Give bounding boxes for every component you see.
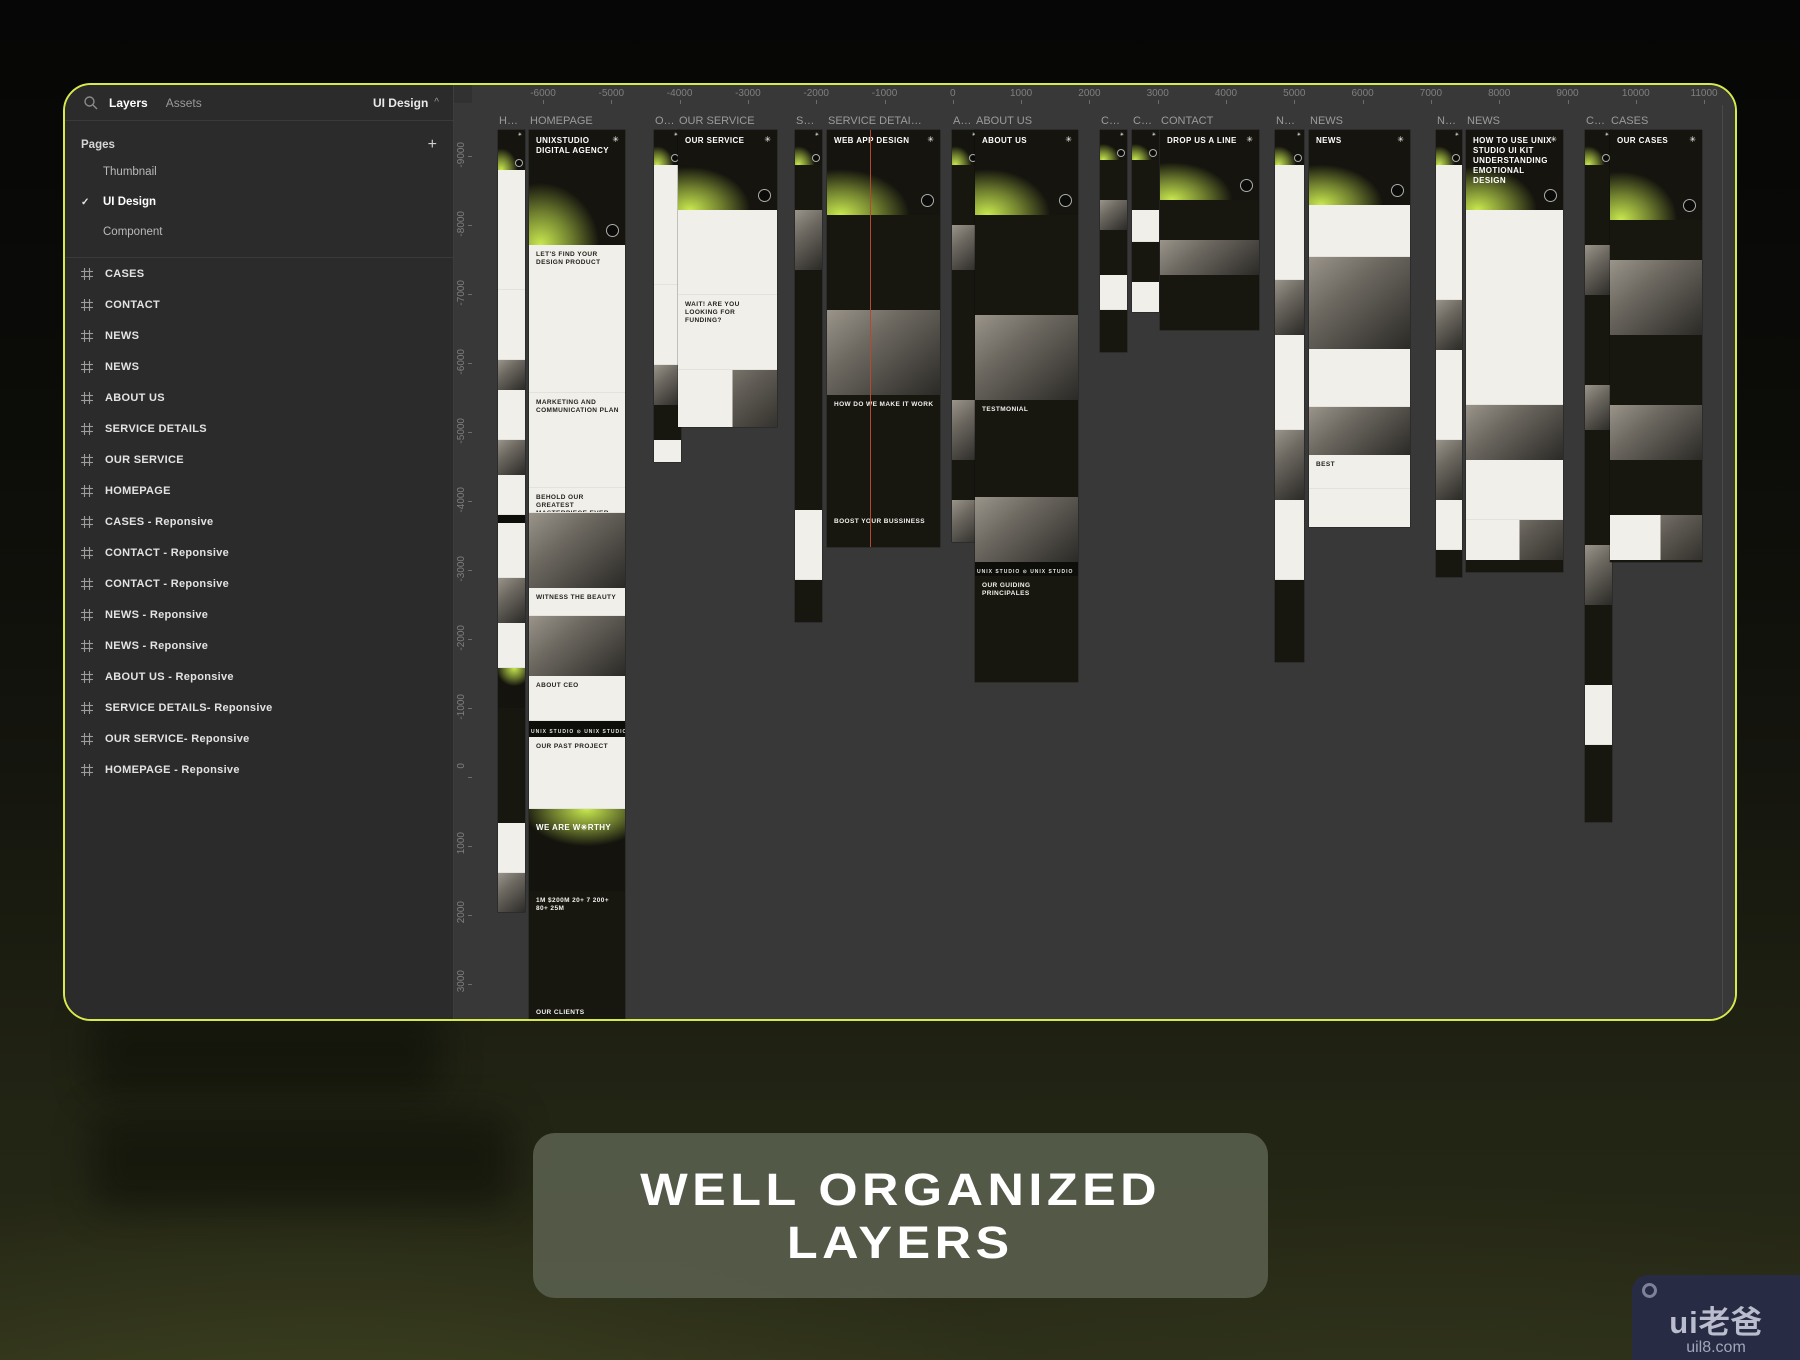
frame-section: 1M $200M 20+ 7 200+ 80+ 25M (529, 891, 625, 1003)
ruler-tick (1431, 100, 1432, 104)
canvas-frame-service-detai-: SERVICE DETAI…WEB APP DESIGN✳HOW DO WE M… (827, 130, 940, 547)
sidebar-page-thumbnail[interactable]: Thumbnail (65, 157, 453, 187)
section-text: HOW DO WE MAKE IT WORK (827, 395, 940, 409)
frame-section (1160, 240, 1259, 275)
page-label: Component (103, 226, 162, 238)
ruler-label: -3000 (456, 556, 467, 582)
ruler-label: -6000 (456, 349, 467, 375)
frame-section (498, 290, 525, 360)
artboard[interactable]: ✳ (654, 130, 681, 462)
artboard[interactable]: ✳ (1436, 130, 1462, 577)
frame-section (1585, 545, 1612, 605)
frame-section: BOOST YOUR BUSSINESS (827, 512, 940, 547)
ruler-tick (468, 225, 472, 226)
frame-section (1132, 210, 1159, 242)
star-icon: ✳ (1120, 133, 1124, 138)
ruler-tick (1158, 100, 1159, 104)
frame-section (498, 668, 525, 708)
canvas-frame-c-: C…✳ (1132, 130, 1159, 312)
frame-section (529, 513, 625, 588)
artboard[interactable]: ✳ (1275, 130, 1304, 662)
section-text: MARKETING AND COMMUNICATION PLAN (529, 393, 625, 415)
frame-section (1275, 430, 1304, 500)
frame-section (1436, 350, 1462, 440)
circle-button-icon (759, 190, 770, 201)
frame-section (795, 165, 822, 210)
frame-section (1466, 210, 1563, 405)
frame-name[interactable]: S… (796, 115, 814, 127)
frame-section: TESTMONIAL (975, 400, 1078, 442)
frame-section: ✳ (654, 130, 681, 165)
frame-section (498, 523, 525, 578)
ruler-tick (468, 501, 472, 502)
ruler-tick (468, 915, 472, 916)
frame-icon (81, 609, 93, 621)
frame-section: ✳ (795, 130, 822, 165)
ruler-tick (468, 639, 472, 640)
frame-icon (81, 578, 93, 590)
ruler-tick (468, 708, 472, 709)
frame-name[interactable]: N… (1437, 115, 1456, 127)
ruler-tick (1704, 100, 1705, 104)
ruler-label: 0 (950, 88, 956, 99)
frame-name[interactable]: CASES (1611, 115, 1648, 127)
frame-section: WE ARE W✳RTHY (529, 809, 625, 891)
frame-section (529, 616, 625, 676)
frame-section (654, 405, 681, 440)
artboard[interactable]: ABOUT US✳TESTMONIALUNIX STUDIO ⊙ UNIX ST… (975, 130, 1078, 682)
layer-label: CONTACT (105, 299, 160, 311)
frame-section: ✳ (1100, 130, 1127, 160)
frame-section: HOW TO USE UNIX STUDIO UI KIT UNDERSTAND… (1466, 130, 1563, 210)
frame-section (975, 626, 1078, 682)
frame-section (498, 170, 525, 290)
ruler-tick (468, 363, 472, 364)
canvas-frame-contact: CONTACTDROP US A LINE✳ (1160, 130, 1259, 330)
frame-section (1100, 200, 1127, 230)
frame-icon (81, 516, 93, 528)
section-text: LET'S FIND YOUR DESIGN PRODUCT (529, 245, 625, 267)
layer-label: ABOUT US - Reponsive (105, 671, 234, 683)
ruler-tick (680, 100, 681, 104)
frame-section (827, 310, 940, 395)
frame-section: ✳ (1585, 130, 1612, 165)
frame-section (1100, 310, 1127, 352)
frame-section (498, 623, 525, 668)
sidebar-item-homepage-reponsive[interactable]: HOMEPAGE - Reponsive (65, 754, 453, 785)
frame-section (1610, 460, 1702, 515)
section-text: OUR PAST PROJECT (529, 737, 625, 751)
frame-name[interactable]: C… (1133, 115, 1152, 127)
ruler-label: -2000 (803, 88, 829, 99)
canvas-frame-n-: N…✳ (1275, 130, 1304, 662)
frame-section: HOW DO WE MAKE IT WORK (827, 395, 940, 450)
frame-section (1309, 349, 1410, 407)
frame-section (654, 285, 681, 365)
ruler-tick (748, 100, 749, 104)
canvas-frame-news: NEWSNEWS✳BEST (1309, 130, 1410, 527)
canvas[interactable]: -6000-5000-4000-3000-2000-10000100020003… (454, 85, 1735, 1019)
pages-section-header: Pages + (65, 121, 453, 157)
frame-section (1585, 245, 1612, 295)
ruler-label: -4000 (667, 88, 693, 99)
ruler-tick (1021, 100, 1022, 104)
tab-layers[interactable]: Layers (109, 96, 148, 110)
artboard[interactable]: ✳ (498, 130, 525, 912)
sidebar-page-component[interactable]: Component (65, 217, 453, 247)
frame-icon (81, 764, 93, 776)
layer-label: ABOUT US (105, 392, 165, 404)
sidebar-item-cases[interactable]: CASES (65, 258, 453, 289)
section-text: WE ARE W✳RTHY (529, 809, 625, 833)
section-text: BEHOLD OUR GREATEST MASTERPIECE EVER (529, 488, 625, 513)
check-icon: ✓ (81, 197, 103, 208)
ruler-label: 2000 (456, 901, 467, 923)
canvas-frame-c-: C…✳ (1585, 130, 1612, 822)
circle-button-icon (1241, 180, 1252, 191)
canvas-frame-our-service: OUR SERVICEOUR SERVICE✳WAIT! ARE YOU LOO… (678, 130, 777, 427)
canvas-frame-h-: H…✳ (498, 130, 525, 912)
ruler-tick (468, 156, 472, 157)
frame-section (1275, 580, 1304, 625)
canvas-frame-o-: O…✳ (654, 130, 681, 462)
frame-section: WITNESS THE BEAUTY (529, 588, 625, 616)
layer-label: SERVICE DETAILS- Reponsive (105, 702, 273, 714)
ruler-label: 3000 (456, 970, 467, 992)
layer-label: NEWS (105, 330, 139, 342)
sidebar-item-our-service-reponsive[interactable]: OUR SERVICE- Reponsive (65, 723, 453, 754)
sidebar-item-about-us[interactable]: ABOUT US (65, 382, 453, 413)
sidebar-item-news-reponsive[interactable]: NEWS - Reponsive (65, 630, 453, 661)
frame-section (1585, 605, 1612, 685)
frame-name[interactable]: SERVICE DETAI… (828, 115, 922, 127)
frame-section (1275, 280, 1304, 335)
frame-section (1610, 220, 1702, 260)
artboard[interactable]: ✳ (1585, 130, 1612, 822)
ruler-tick (1226, 100, 1227, 104)
ui8-watermark-badge: ui老爸 uil8.com (1632, 1275, 1800, 1360)
tab-assets[interactable]: Assets (166, 96, 202, 110)
star-icon: ✳ (764, 136, 771, 144)
sidebar-item-news-reponsive[interactable]: NEWS - Reponsive (65, 599, 453, 630)
frame-section (678, 210, 777, 295)
sidebar-item-contact-reponsive[interactable]: CONTACT - Reponsive (65, 568, 453, 599)
frame-section (498, 823, 525, 873)
circle-button-icon (1295, 155, 1301, 161)
frame-section (975, 497, 1078, 562)
frame-section (678, 370, 777, 427)
section-text: BEST (1309, 455, 1410, 469)
page-label: Thumbnail (103, 166, 157, 178)
frame-section (795, 420, 822, 510)
frame-section: UNIX STUDIO ⊙ UNIX STUDIO (975, 562, 1078, 576)
frame-section (1466, 520, 1563, 560)
ruler-tick (1294, 100, 1295, 104)
ruler-tick (953, 100, 954, 104)
frame-section (498, 390, 525, 440)
circle-button-icon (516, 160, 522, 166)
star-icon: ✳ (1605, 133, 1609, 138)
frame-section: ✳ (498, 130, 525, 170)
frame-section (1610, 260, 1702, 335)
ruler-label: -7000 (456, 280, 467, 306)
frame-section: OUR CLIENTS (529, 1003, 625, 1019)
section-text: UNIXSTUDIO DIGITAL AGENCY (529, 130, 625, 156)
section-text: UNIX STUDIO ⊙ UNIX STUDIO (975, 563, 1078, 575)
layer-label: CONTACT - Reponsive (105, 547, 229, 559)
canvas-frame-cases: CASESOUR CASES✳ (1610, 130, 1702, 562)
sidebar-item-service-details-reponsive[interactable]: SERVICE DETAILS- Reponsive (65, 692, 453, 723)
artboard[interactable]: DROP US A LINE✳ (1160, 130, 1259, 330)
frame-section: OUR SERVICE✳ (678, 130, 777, 210)
sidebar-item-news[interactable]: NEWS (65, 320, 453, 351)
section-text: OUR CLIENTS (529, 1003, 625, 1017)
frame-section (1466, 460, 1563, 520)
canvas-frame-c-: C…✳ (1100, 130, 1127, 352)
ruler-label: -1000 (872, 88, 898, 99)
frame-name[interactable]: HOMEPAGE (530, 115, 593, 127)
frame-name[interactable]: N… (1276, 115, 1295, 127)
circle-button-icon (1545, 190, 1556, 201)
star-icon: ✳ (1550, 136, 1557, 144)
stage: Layers Assets UI Design ^ Pages + Thumbn… (0, 0, 1800, 1360)
frame-section (1436, 300, 1462, 350)
frame-section (1160, 275, 1259, 330)
frame-icon (81, 485, 93, 497)
frame-section (795, 270, 822, 420)
layer-label: CASES - Reponsive (105, 516, 213, 528)
frame-name[interactable]: NEWS (1467, 115, 1500, 127)
frame-section (498, 360, 525, 390)
canvas-frame-homepage: HOMEPAGEUNIXSTUDIO DIGITAL AGENCY✳LET'S … (529, 130, 625, 1019)
sidebar-page-ui-design[interactable]: ✓UI Design (65, 187, 453, 217)
frame-section (1585, 385, 1612, 430)
ruler-label: -2000 (456, 625, 467, 651)
frame-section (1585, 295, 1612, 385)
frame-section (498, 708, 525, 778)
frame-section (975, 442, 1078, 497)
ruler-tick (816, 100, 817, 104)
ruler-label: 2000 (1078, 88, 1100, 99)
layers-panel: Layers Assets UI Design ^ Pages + Thumbn… (65, 85, 454, 1019)
frame-section: OUR GUIDING PRINCIPALES (975, 576, 1078, 626)
artboard[interactable]: ✳ (795, 130, 822, 622)
ruler-tick (468, 846, 472, 847)
frame-section (654, 440, 681, 462)
frame-section (1436, 440, 1462, 500)
red-guide-line (870, 130, 871, 547)
frame-section: ✳ (1275, 130, 1304, 165)
artboard[interactable]: NEWS✳BEST (1309, 130, 1410, 527)
frame-icon (81, 268, 93, 280)
ruler-label: -1000 (456, 694, 467, 720)
ruler-corner (454, 85, 472, 103)
frame-section (1275, 165, 1304, 280)
star-icon: ✳ (1397, 136, 1404, 144)
frame-name[interactable]: OUR SERVICE (679, 115, 755, 127)
sidebar-item-news[interactable]: NEWS (65, 351, 453, 382)
frame-section (498, 578, 525, 623)
frame-name[interactable]: C… (1586, 115, 1605, 127)
ruler-tick (1636, 100, 1637, 104)
frame-section (1436, 500, 1462, 550)
design-tool-window: Layers Assets UI Design ^ Pages + Thumbn… (63, 83, 1737, 1021)
circle-button-icon (1118, 150, 1124, 156)
ruler-tick (1089, 100, 1090, 104)
frame-section (1610, 405, 1702, 460)
frame-section: WAIT! ARE YOU LOOKING FOR FUNDING? (678, 295, 777, 370)
frame-section: ABOUT CEO (529, 676, 625, 721)
ruler-tick (468, 984, 472, 985)
sidebar-item-our-service[interactable]: OUR SERVICE (65, 444, 453, 475)
ui8-logo: ui老爸 (1632, 1297, 1800, 1342)
frame-section (975, 315, 1078, 400)
artboard[interactable]: UNIXSTUDIO DIGITAL AGENCY✳LET'S FIND YOU… (529, 130, 625, 1019)
ruler-label: 5000 (1283, 88, 1305, 99)
frame-section (654, 365, 681, 405)
ruler-label: -6000 (530, 88, 556, 99)
layer-label: HOMEPAGE - Reponsive (105, 764, 240, 776)
ruler-tick (611, 100, 612, 104)
frame-icon (81, 330, 93, 342)
frame-section (1132, 282, 1159, 312)
artboard[interactable]: ✳ (1100, 130, 1127, 352)
circle-button-icon (1060, 195, 1071, 206)
ruler-label: 11000 (1691, 88, 1718, 99)
sidebar-item-about-us-reponsive[interactable]: ABOUT US - Reponsive (65, 661, 453, 692)
frame-section: WEB APP DESIGN✳ (827, 130, 940, 215)
ruler-label: 9000 (1556, 88, 1578, 99)
ruler-label: 6000 (1351, 88, 1373, 99)
frame-name[interactable]: O… (655, 115, 675, 127)
section-text: WAIT! ARE YOU LOOKING FOR FUNDING? (678, 295, 777, 325)
section-text: TESTMONIAL (975, 400, 1078, 414)
layer-label: OUR SERVICE- Reponsive (105, 733, 250, 745)
pages-list: Thumbnail✓UI DesignComponent (65, 157, 453, 247)
frame-name[interactable]: CONTACT (1161, 115, 1213, 127)
ruler-label: -4000 (456, 487, 467, 513)
section-text: WEB APP DESIGN (827, 130, 940, 146)
search-icon[interactable] (83, 95, 99, 111)
frame-section (975, 275, 1078, 315)
star-icon: ✳ (1297, 133, 1301, 138)
ruler-tick (543, 100, 544, 104)
section-text: UNIX STUDIO ⊙ UNIX STUDIO ⊙ UNIX STUDIO (529, 723, 625, 735)
ruler-label: 0 (456, 763, 467, 769)
frame-section (1585, 430, 1612, 545)
ruler-label: 8000 (1488, 88, 1510, 99)
ruler-tick (1363, 100, 1364, 104)
section-text: WITNESS THE BEAUTY (529, 588, 625, 602)
artboard[interactable]: WEB APP DESIGN✳HOW DO WE MAKE IT WORKBOO… (827, 130, 940, 547)
frame-section: DROP US A LINE✳ (1160, 130, 1259, 200)
caption-line-2: LAYERS (787, 1220, 1014, 1265)
ruler-label: -5000 (456, 418, 467, 444)
star-icon: ✳ (1246, 136, 1253, 144)
artboard[interactable]: OUR CASES✳ (1610, 130, 1702, 562)
frame-name[interactable]: A… (953, 115, 971, 127)
frame-name[interactable]: NEWS (1310, 115, 1343, 127)
frame-section (827, 450, 940, 512)
chevron-up-icon: ^ (434, 97, 439, 108)
layer-label: NEWS (105, 361, 139, 373)
sidebar-item-contact-reponsive[interactable]: CONTACT - Reponsive (65, 537, 453, 568)
canvas-frame-n-: N…✳ (1436, 130, 1462, 577)
frame-name[interactable]: C… (1101, 115, 1120, 127)
ring-icon (1642, 1283, 1657, 1298)
sidebar-item-cases-reponsive[interactable]: CASES - Reponsive (65, 506, 453, 537)
frame-section (498, 475, 525, 515)
frame-section (1160, 200, 1259, 240)
ruler-tick (468, 777, 472, 778)
sidebar-item-contact[interactable]: CONTACT (65, 289, 453, 320)
scrollbar-track[interactable] (1722, 105, 1723, 1013)
frame-section (1100, 275, 1127, 310)
artboard[interactable]: OUR SERVICE✳WAIT! ARE YOU LOOKING FOR FU… (678, 130, 777, 427)
frame-section (1100, 230, 1127, 275)
frame-section (795, 510, 822, 580)
canvas-frame-s-: S…✳ (795, 130, 822, 622)
frame-icon (81, 671, 93, 683)
frame-icon (81, 299, 93, 311)
layer-label: OUR SERVICE (105, 454, 184, 466)
layer-label: NEWS - Reponsive (105, 609, 208, 621)
frame-name[interactable]: H… (499, 115, 518, 127)
frame-section: OUR CASES✳ (1610, 130, 1702, 220)
ruler-label: 10000 (1622, 88, 1650, 99)
ruler-label: 3000 (1147, 88, 1169, 99)
page-selector[interactable]: UI Design (373, 96, 428, 110)
page-label: UI Design (103, 196, 156, 208)
sidebar-item-homepage[interactable]: HOMEPAGE (65, 475, 453, 506)
layers-list: CASESCONTACTNEWSNEWSABOUT USSERVICE DETA… (65, 258, 453, 785)
circle-button-icon (922, 195, 933, 206)
ruler-label: -5000 (599, 88, 625, 99)
circle-button-icon (1603, 155, 1609, 161)
ruler-label: -8000 (456, 211, 467, 237)
star-icon: ✳ (927, 136, 934, 144)
ruler-tick (468, 294, 472, 295)
ruler-label: -9000 (456, 142, 467, 168)
ruler-tick (1499, 100, 1500, 104)
frame-section (827, 215, 940, 310)
frame-section (1585, 745, 1612, 795)
frame-icon (81, 361, 93, 373)
canvas-frame-about-us: ABOUT USABOUT US✳TESTMONIALUNIX STUDIO ⊙… (975, 130, 1078, 682)
ruler-tick (468, 432, 472, 433)
star-icon: ✳ (815, 133, 819, 138)
sidebar-item-service-details[interactable]: SERVICE DETAILS (65, 413, 453, 444)
section-text: OUR CASES (1610, 130, 1702, 146)
frame-section (1275, 335, 1304, 430)
artboard[interactable]: HOW TO USE UNIX STUDIO UI KIT UNDERSTAND… (1466, 130, 1563, 572)
frame-section (1585, 165, 1612, 245)
ui8-url: uil8.com (1632, 1339, 1800, 1357)
frame-name[interactable]: ABOUT US (976, 115, 1032, 127)
frame-section (1309, 205, 1410, 257)
circle-button-icon (1150, 150, 1156, 156)
ruler-tick (468, 570, 472, 571)
artboard[interactable]: ✳ (1132, 130, 1159, 312)
star-icon: ✳ (518, 133, 522, 138)
frame-section (1309, 489, 1410, 527)
circle-button-icon (607, 225, 618, 236)
frame-section: ABOUT US✳ (975, 130, 1078, 215)
add-page-button[interactable]: + (428, 137, 437, 153)
section-text: DROP US A LINE (1160, 130, 1259, 146)
star-icon: ✳ (1065, 136, 1072, 144)
frame-section (1309, 407, 1410, 455)
